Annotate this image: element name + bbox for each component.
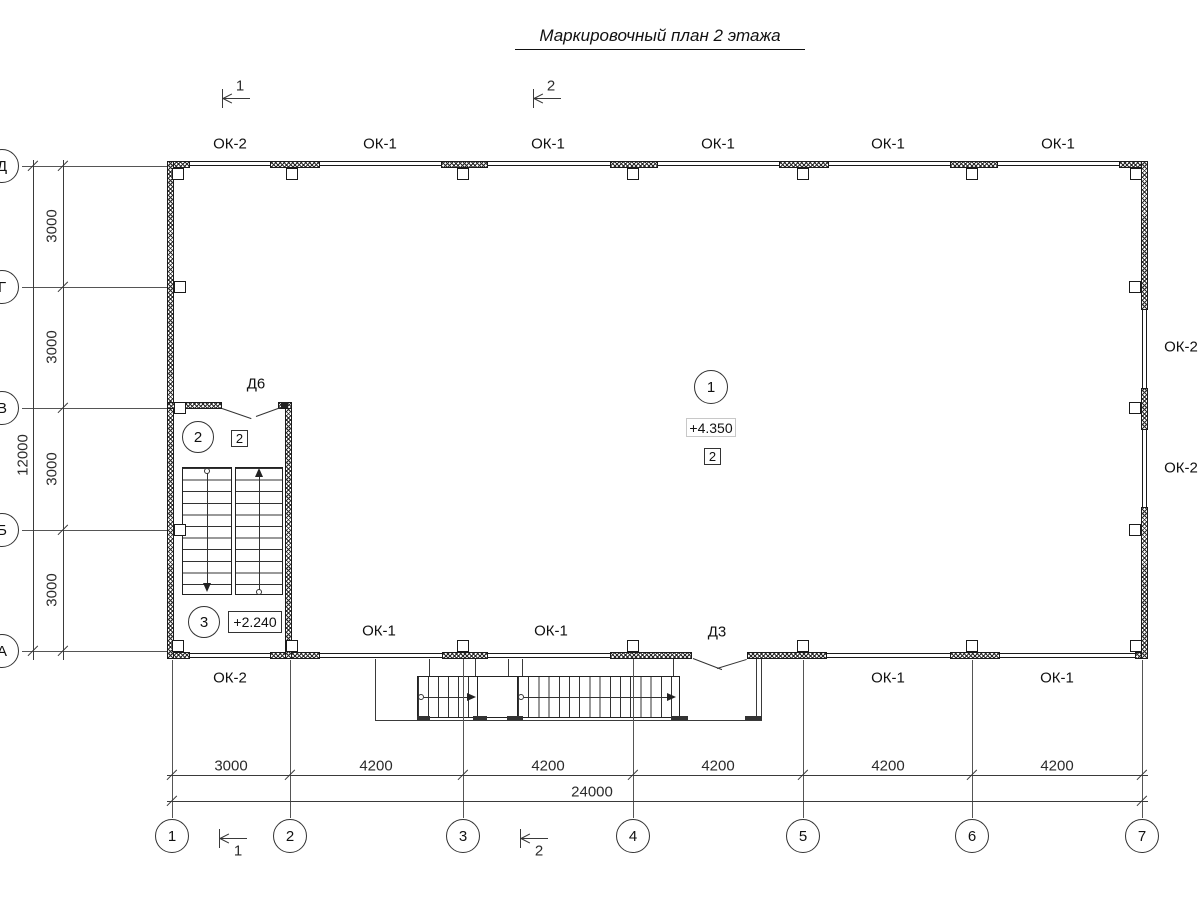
finish-type-box: 2	[231, 430, 248, 447]
column-mark	[172, 168, 184, 180]
axis-bubble: 5	[786, 819, 820, 853]
room-marker: 1	[694, 370, 728, 404]
door-leaf	[222, 408, 252, 419]
dimension-total: 24000	[571, 784, 613, 801]
dimension-value: 3000	[44, 573, 61, 606]
column-mark	[286, 640, 298, 652]
window-symbol	[320, 653, 442, 658]
stair-support-line	[475, 659, 476, 676]
window-symbol	[320, 161, 441, 166]
exterior-stair-edge	[761, 659, 762, 720]
door-label: Д3	[708, 624, 727, 641]
door-hinge-block	[281, 402, 288, 408]
dimension-value: 4200	[359, 758, 392, 775]
column-mark	[1129, 524, 1141, 536]
wall-pier	[950, 161, 998, 168]
axis-bubble: В	[0, 391, 19, 425]
column-mark	[1129, 281, 1141, 293]
wall-pier	[441, 161, 488, 168]
window-symbol	[1000, 653, 1135, 658]
column-mark	[966, 168, 978, 180]
grid-line	[22, 651, 167, 652]
window-label: ОК-2	[213, 136, 247, 153]
section-mark-number: 2	[547, 78, 555, 95]
column-mark	[174, 524, 186, 536]
stair-direction-line	[207, 472, 208, 584]
dimension-line	[167, 801, 1148, 802]
dimension-value: 4200	[531, 758, 564, 775]
window-label: ОК-1	[701, 136, 735, 153]
axis-bubble: 7	[1125, 819, 1159, 853]
exterior-stair-edge	[375, 720, 762, 721]
dimension-total: 12000	[15, 434, 32, 476]
column-mark	[966, 640, 978, 652]
window-symbol	[190, 653, 270, 658]
axis-bubble: 1	[155, 819, 189, 853]
elevation-mark: +2.240	[228, 611, 282, 633]
grid-line	[972, 660, 973, 818]
column-mark	[174, 281, 186, 293]
wall-pier	[779, 161, 829, 168]
finish-type-box: 2	[704, 448, 721, 465]
dimension-value: 3000	[44, 209, 61, 242]
grid-line	[1142, 660, 1143, 818]
grid-line	[803, 660, 804, 818]
elevation-mark: +4.350	[686, 418, 736, 437]
dimension-line	[33, 160, 34, 660]
window-label: ОК-1	[1040, 670, 1074, 687]
grid-line	[22, 287, 167, 288]
dimension-line	[167, 775, 1148, 776]
window-label: ОК-1	[871, 670, 905, 687]
window-label: ОК-2	[213, 670, 247, 687]
window-label: ОК-2	[1164, 460, 1198, 477]
window-label: ОК-1	[1041, 136, 1075, 153]
window-symbol	[827, 653, 950, 658]
axis-bubble: Д	[0, 149, 19, 183]
stair-direction-arrow	[203, 583, 211, 592]
section-mark-number: 2	[535, 843, 543, 860]
wall-pier	[1141, 161, 1148, 310]
window-symbol	[488, 653, 610, 658]
stair-foot-pad	[473, 716, 487, 720]
window-symbol	[1142, 430, 1147, 507]
column-mark	[286, 168, 298, 180]
section-mark-number: 1	[234, 843, 242, 860]
window-symbol	[829, 161, 950, 166]
exterior-stair-edge	[375, 659, 376, 720]
stair-direction-start	[518, 694, 524, 700]
window-label: ОК-2	[1164, 339, 1198, 356]
window-label: ОК-1	[362, 623, 396, 640]
stair-direction-start	[204, 468, 210, 474]
window-symbol	[1142, 310, 1147, 388]
dimension-value: 3000	[44, 452, 61, 485]
dimension-value: 3000	[44, 330, 61, 363]
grid-line	[22, 166, 167, 167]
column-mark	[1129, 402, 1141, 414]
grid-line	[463, 659, 464, 818]
stair-direction-arrow	[467, 693, 476, 701]
stair-support-line	[522, 659, 523, 676]
stair-direction-arrow	[255, 468, 263, 477]
stair-support-line	[673, 659, 674, 676]
window-label: ОК-1	[534, 623, 568, 640]
wall-pier	[747, 652, 827, 659]
stair-direction-arrow	[667, 693, 676, 701]
axis-bubble: 4	[616, 819, 650, 853]
dimension-value: 4200	[871, 758, 904, 775]
stair-direction-start	[256, 589, 262, 595]
column-mark	[172, 640, 184, 652]
window-symbol	[658, 161, 779, 166]
column-mark	[1130, 168, 1142, 180]
stair-support-line	[508, 659, 509, 676]
wall-pier	[1141, 388, 1148, 430]
grid-line	[22, 530, 167, 531]
wall-left	[167, 161, 174, 659]
wall-pier	[270, 161, 320, 168]
window-symbol	[190, 161, 270, 166]
column-mark	[627, 640, 639, 652]
column-mark	[797, 640, 809, 652]
stair-foot-pad	[671, 716, 688, 720]
window-symbol	[488, 161, 610, 166]
stair-direction-line	[259, 476, 260, 590]
wall-pier	[610, 652, 692, 659]
floor-plan-drawing: Маркировочный план 2 этажа 1 2 ОК-2 ОК-1…	[0, 0, 1200, 900]
grid-line	[633, 659, 634, 818]
stair-direction-line	[524, 697, 670, 698]
window-label: ОК-1	[531, 136, 565, 153]
dimension-value: 4200	[701, 758, 734, 775]
stair-support-line	[429, 659, 430, 676]
stair-direction-start	[418, 694, 424, 700]
room-marker: 3	[188, 606, 220, 638]
window-label: ОК-1	[871, 136, 905, 153]
column-mark	[457, 168, 469, 180]
axis-bubble: 3	[446, 819, 480, 853]
column-mark	[457, 640, 469, 652]
stairwell-wall	[285, 402, 292, 659]
stair-foot-pad	[417, 716, 430, 720]
axis-bubble: А	[0, 634, 19, 668]
stair-foot-pad	[507, 716, 523, 720]
wall-pier	[270, 652, 320, 659]
wall-pier	[1141, 507, 1148, 659]
door-label: Д6	[247, 376, 266, 393]
grid-line	[22, 408, 167, 409]
exterior-stair-edge	[756, 659, 757, 720]
axis-bubble: 2	[273, 819, 307, 853]
exterior-stair-landing	[477, 676, 518, 718]
axis-bubble: 6	[955, 819, 989, 853]
section-mark-number: 1	[236, 78, 244, 95]
axis-bubble: Б	[0, 513, 19, 547]
drawing-title: Маркировочный план 2 этажа	[515, 26, 805, 50]
dimension-value: 3000	[214, 758, 247, 775]
grid-line	[172, 660, 173, 818]
column-mark	[797, 168, 809, 180]
dimension-value: 4200	[1040, 758, 1073, 775]
wall-pier	[950, 652, 1000, 659]
column-mark	[627, 168, 639, 180]
column-mark	[174, 402, 186, 414]
window-label: ОК-1	[363, 136, 397, 153]
window-symbol	[998, 161, 1119, 166]
axis-bubble: Г	[0, 270, 19, 304]
door-leaf	[717, 659, 747, 669]
stair-foot-pad	[745, 716, 762, 720]
room-marker: 2	[182, 421, 214, 453]
wall-pier	[610, 161, 658, 168]
wall-pier	[442, 652, 488, 659]
dimension-line	[63, 160, 64, 660]
column-mark	[1130, 640, 1142, 652]
grid-line	[290, 660, 291, 818]
